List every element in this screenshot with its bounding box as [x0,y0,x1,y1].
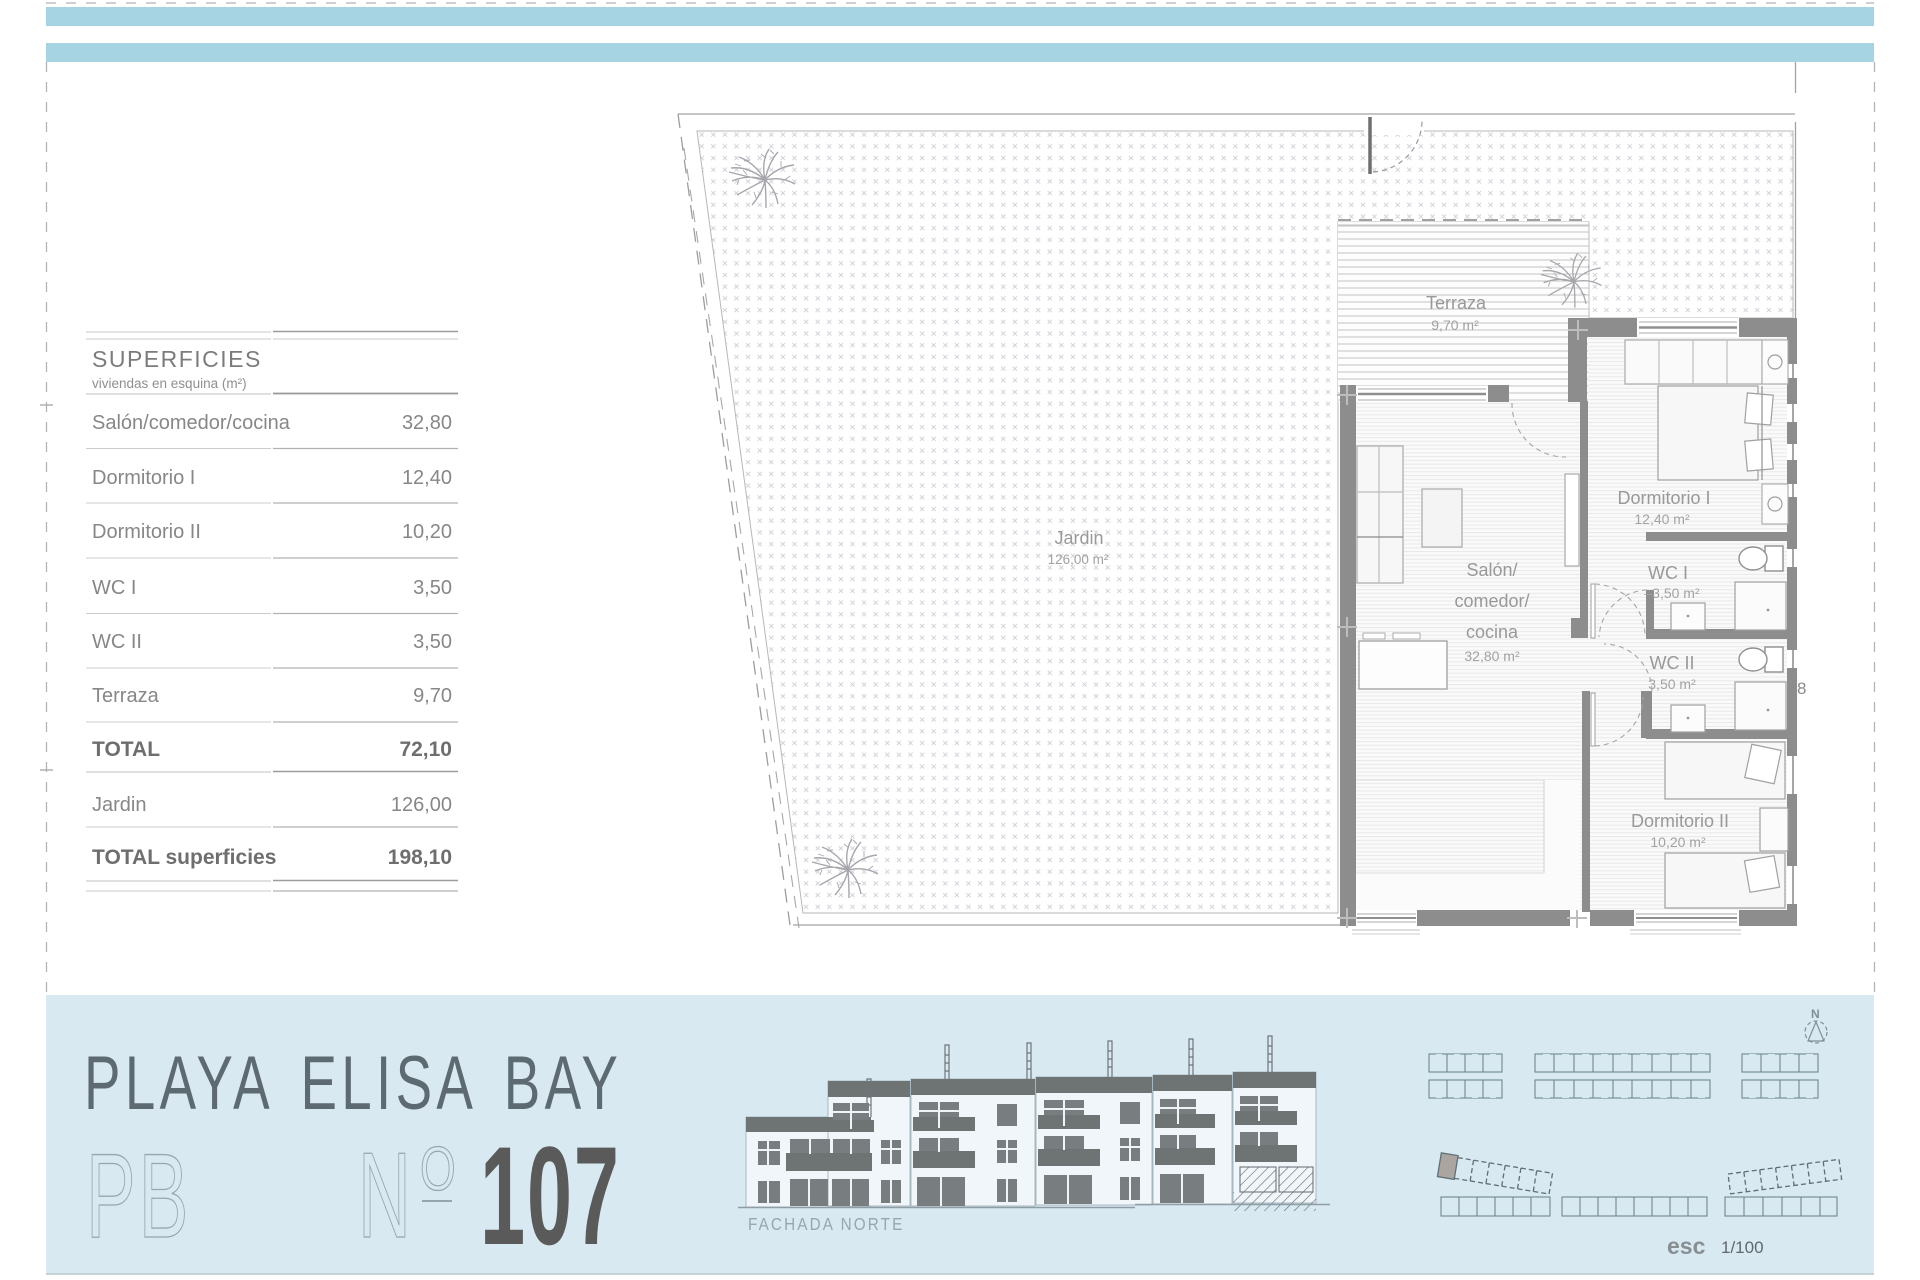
svg-text:TOTAL: TOTAL [92,738,160,761]
svg-text:comedor/: comedor/ [1454,591,1529,611]
svg-text:N: N [1811,1007,1820,1021]
svg-text:126,00 m²: 126,00 m² [1048,552,1109,567]
svg-text:32,80: 32,80 [402,412,452,434]
svg-text:Dormitorio I: Dormitorio I [1617,488,1710,508]
svg-text:esc: esc [1667,1233,1706,1259]
svg-text:9,70 m²: 9,70 m² [1431,317,1479,333]
svg-text:10,20 m²: 10,20 m² [1650,834,1706,850]
svg-text:8: 8 [1797,679,1806,698]
svg-text:Terraza: Terraza [92,685,160,707]
svg-text:198,10: 198,10 [388,846,452,869]
svg-text:107: 107 [480,1118,621,1275]
svg-text:TOTAL superficies: TOTAL superficies [92,846,276,869]
svg-text:Terraza: Terraza [1426,293,1487,313]
svg-text:Salón/comedor/cocina: Salón/comedor/cocina [92,412,291,434]
svg-text:WC II: WC II [1650,653,1695,673]
svg-text:12,40: 12,40 [402,467,452,489]
svg-text:viviendas en esquina (m²): viviendas en esquina (m²) [92,376,247,391]
svg-text:Jardin: Jardin [1054,528,1103,548]
svg-text:–3,50 m²: –3,50 m² [1644,585,1700,601]
svg-text:Dormitorio I: Dormitorio I [92,467,195,489]
svg-text:WC II: WC II [92,631,142,653]
svg-text:1/100: 1/100 [1721,1238,1764,1257]
svg-text:SUPERFICIES: SUPERFICIES [92,346,262,372]
svg-text:PLAYA ELISA BAY: PLAYA ELISA BAY [84,1041,622,1126]
svg-text:Jardin: Jardin [92,794,146,816]
svg-text:3,50: 3,50 [413,631,452,653]
svg-text:N: N [358,1128,411,1264]
svg-text:32,80 m²: 32,80 m² [1464,648,1520,664]
svg-text:10,20: 10,20 [402,521,452,543]
svg-text:WC I: WC I [92,577,136,599]
svg-text:Dormitorio II: Dormitorio II [1631,811,1729,831]
svg-text:FACHADA NORTE: FACHADA NORTE [748,1214,904,1234]
svg-text:3,50: 3,50 [413,577,452,599]
svg-text:cocina: cocina [1466,622,1519,642]
svg-text:9,70: 9,70 [413,685,452,707]
svg-text:Dormitorio II: Dormitorio II [92,521,201,543]
svg-text:3,50 m²: 3,50 m² [1648,676,1696,692]
svg-text:PB: PB [86,1130,191,1263]
svg-text:Salón/: Salón/ [1466,560,1517,580]
svg-text:126,00: 126,00 [391,794,452,816]
svg-text:12,40 m²: 12,40 m² [1634,511,1690,527]
svg-text:WC I: WC I [1648,563,1688,583]
svg-text:72,10: 72,10 [399,738,452,761]
svg-text:O: O [420,1134,456,1203]
